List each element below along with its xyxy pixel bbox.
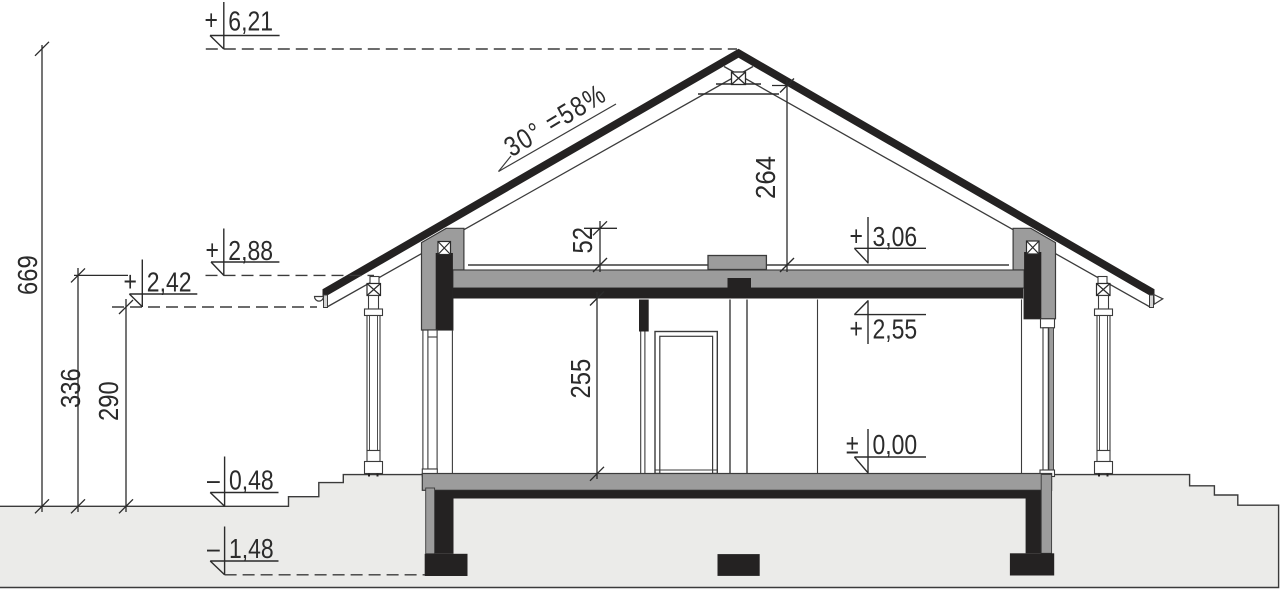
svg-text:52: 52 xyxy=(566,227,598,253)
svg-text:255: 255 xyxy=(564,359,596,399)
svg-text:2,42: 2,42 xyxy=(147,267,192,298)
svg-text:2,55: 2,55 xyxy=(873,314,918,345)
svg-text:6,21: 6,21 xyxy=(228,6,273,37)
svg-text:2,88: 2,88 xyxy=(228,236,273,267)
svg-text:290: 290 xyxy=(92,381,124,421)
svg-text:–: – xyxy=(207,533,220,564)
svg-text:1,48: 1,48 xyxy=(229,534,274,565)
svg-text:264: 264 xyxy=(750,156,781,199)
svg-text:–: – xyxy=(207,465,220,496)
svg-text:0,00: 0,00 xyxy=(873,430,918,461)
svg-text:+: + xyxy=(124,267,137,298)
svg-text:+: + xyxy=(206,235,219,266)
svg-text:+: + xyxy=(205,5,218,36)
svg-text:3,06: 3,06 xyxy=(873,222,918,253)
svg-text:±: ± xyxy=(846,429,859,460)
svg-text:336: 336 xyxy=(54,368,86,408)
svg-text:+: + xyxy=(850,221,863,252)
svg-text:0,48: 0,48 xyxy=(229,465,274,496)
svg-text:669: 669 xyxy=(11,255,43,295)
svg-text:+: + xyxy=(850,314,863,345)
